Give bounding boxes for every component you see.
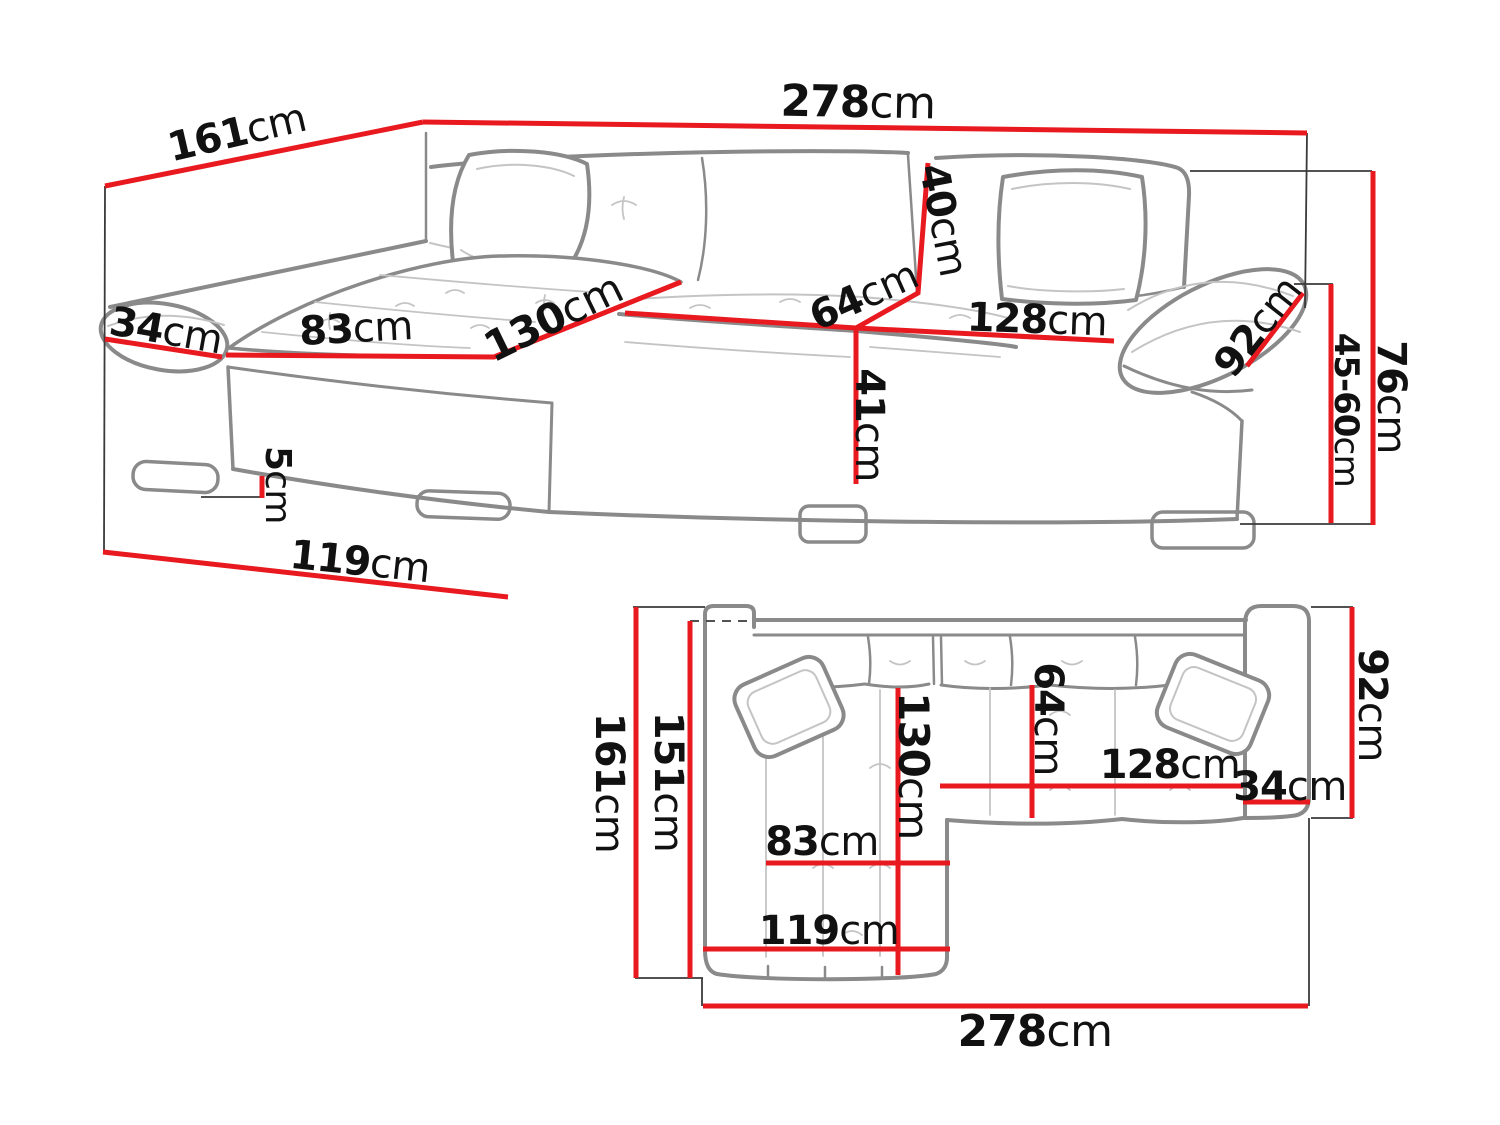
plan-pillow-left-group bbox=[729, 652, 848, 762]
label-chaise-side-length: 119cm bbox=[288, 532, 433, 592]
plan-backrest-tufts bbox=[798, 660, 1200, 665]
plan-label-chaise-outer-width: 119cm bbox=[759, 908, 899, 954]
plan-left-edge bbox=[705, 650, 717, 974]
leg-front-middle bbox=[800, 506, 866, 542]
base-chaise-left-edge bbox=[228, 367, 233, 469]
label-seat-width: 128cm bbox=[966, 295, 1108, 346]
plan-label-seat-width: 128cm bbox=[1100, 742, 1240, 788]
plan-view: 161cm 151cm 130cm 64cm 92cm 128cm 34cm 8… bbox=[586, 606, 1395, 1057]
leg-front-left bbox=[132, 461, 218, 493]
plan-label-chaise-seat-width: 83cm bbox=[765, 819, 879, 865]
plan-seat-front-edge bbox=[947, 818, 1243, 824]
extension-left bbox=[104, 186, 105, 552]
label-total-height: 76cm bbox=[1368, 340, 1414, 454]
plan-label-seat-depth: 64cm bbox=[1025, 662, 1071, 776]
label-leg-height: 5cm bbox=[258, 446, 299, 524]
extension-right-top bbox=[1305, 133, 1307, 308]
plan-chaise-bottom-notches bbox=[768, 966, 882, 977]
plan-chaise-bottom-edge bbox=[717, 957, 947, 979]
plan-label-inner-depth: 151cm bbox=[645, 712, 691, 852]
plan-label-chaise-length: 130cm bbox=[890, 692, 939, 840]
label-armrest-height: 45-60cm bbox=[1326, 333, 1366, 488]
diagram-canvas: 278cm 161cm 34cm 83cm 130cm 64cm 40cm 12… bbox=[0, 0, 1500, 1125]
pillow-right bbox=[998, 170, 1145, 303]
plan-label-armrest-width: 34cm bbox=[1233, 764, 1347, 810]
perspective-view: 278cm 161cm 34cm 83cm 130cm 64cm 40cm 12… bbox=[95, 75, 1414, 597]
plan-pillow-left bbox=[729, 652, 848, 762]
plan-armrest-left-block bbox=[705, 606, 754, 650]
plan-label-armrest-depth: 92cm bbox=[1349, 648, 1395, 762]
base-armrest-joint bbox=[1192, 392, 1242, 421]
sofa-dimension-diagram: 278cm 161cm 34cm 83cm 130cm 64cm 40cm 12… bbox=[0, 0, 1500, 1125]
label-seat-height: 41cm bbox=[846, 368, 892, 482]
plan-label-total-depth: 161cm bbox=[586, 713, 632, 853]
label-total-width: 278cm bbox=[780, 75, 936, 129]
base-right-edge bbox=[1237, 421, 1242, 519]
backrest-left-divider bbox=[698, 158, 706, 280]
base-main-bottom-edge bbox=[549, 512, 1237, 522]
label-chaise-seat-width: 83cm bbox=[298, 303, 414, 355]
plan-label-total-width: 278cm bbox=[958, 1006, 1113, 1057]
